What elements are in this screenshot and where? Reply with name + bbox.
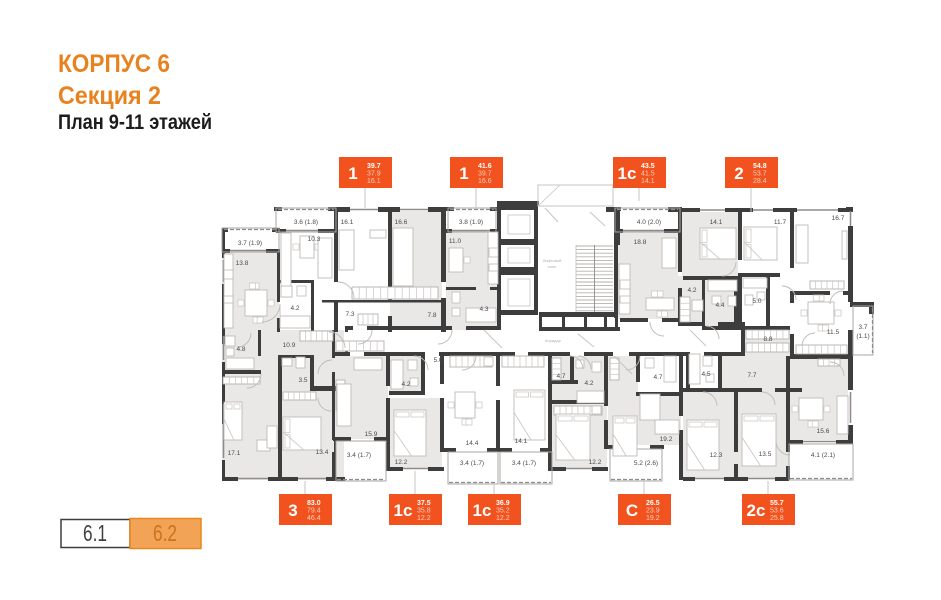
svg-text:3.6 (1.8): 3.6 (1.8) <box>294 219 318 226</box>
svg-text:16.6: 16.6 <box>395 219 408 226</box>
svg-text:26.5: 26.5 <box>646 500 660 507</box>
svg-text:4.7: 4.7 <box>653 374 662 381</box>
svg-text:79.4: 79.4 <box>307 508 321 515</box>
svg-text:15.9: 15.9 <box>365 431 378 438</box>
svg-text:12.2: 12.2 <box>417 515 431 522</box>
svg-text:7.7: 7.7 <box>747 372 756 379</box>
svg-text:2с: 2с <box>747 501 766 520</box>
svg-text:10.3: 10.3 <box>308 236 321 243</box>
svg-text:1с: 1с <box>618 164 637 183</box>
svg-text:25.8: 25.8 <box>770 515 784 522</box>
svg-text:3.7: 3.7 <box>858 324 867 331</box>
svg-text:12.2: 12.2 <box>496 515 510 522</box>
svg-text:С: С <box>626 501 638 520</box>
svg-text:14.1: 14.1 <box>515 438 528 445</box>
svg-text:11.5: 11.5 <box>827 329 840 336</box>
svg-text:6.2: 6.2 <box>153 520 177 546</box>
svg-text:8.8: 8.8 <box>763 336 772 343</box>
svg-text:46.4: 46.4 <box>307 515 321 522</box>
svg-text:Секция 2: Секция 2 <box>58 82 161 110</box>
svg-text:4.8: 4.8 <box>236 346 245 353</box>
svg-text:54.8: 54.8 <box>753 163 767 170</box>
svg-text:37.5: 37.5 <box>417 500 431 507</box>
svg-text:5.0: 5.0 <box>752 298 761 305</box>
svg-text:4.2: 4.2 <box>290 305 299 312</box>
svg-text:19.2: 19.2 <box>646 515 660 522</box>
svg-text:1: 1 <box>459 164 468 183</box>
svg-text:Лифтовой: Лифтовой <box>543 258 562 263</box>
svg-text:3: 3 <box>288 501 297 520</box>
svg-text:18.8: 18.8 <box>634 239 647 246</box>
svg-text:14.4: 14.4 <box>466 440 479 447</box>
svg-text:4.4: 4.4 <box>715 302 724 309</box>
svg-text:12.2: 12.2 <box>589 459 602 466</box>
svg-text:13.8: 13.8 <box>236 260 249 267</box>
svg-text:3.8 (1.9): 3.8 (1.9) <box>459 219 483 226</box>
svg-text:41.6: 41.6 <box>478 163 492 170</box>
svg-text:14.1: 14.1 <box>641 178 655 185</box>
svg-text:6.1: 6.1 <box>83 520 107 546</box>
svg-text:41.5: 41.5 <box>641 171 655 178</box>
svg-text:13.4: 13.4 <box>316 449 329 456</box>
svg-text:5.0: 5.0 <box>433 357 442 364</box>
svg-text:7.8: 7.8 <box>427 312 436 319</box>
svg-text:35.8: 35.8 <box>417 508 431 515</box>
svg-text:холл: холл <box>548 264 557 269</box>
svg-text:19.2: 19.2 <box>660 436 673 443</box>
svg-text:39.7: 39.7 <box>367 163 381 170</box>
svg-text:5.2 (2.6): 5.2 (2.6) <box>634 460 658 467</box>
svg-text:4.5: 4.5 <box>701 371 710 378</box>
svg-text:16.1: 16.1 <box>367 178 381 185</box>
svg-text:КОРПУС 6: КОРПУС 6 <box>58 50 170 78</box>
svg-text:4.2: 4.2 <box>401 381 410 388</box>
svg-text:4.2: 4.2 <box>687 287 696 294</box>
svg-text:11.7: 11.7 <box>774 219 787 226</box>
svg-text:3.4 (1.7): 3.4 (1.7) <box>460 460 484 467</box>
svg-text:План 9-11 этажей: План 9-11 этажей <box>58 111 212 134</box>
svg-text:1с: 1с <box>473 501 492 520</box>
svg-text:43.5: 43.5 <box>641 163 655 170</box>
svg-text:4.2: 4.2 <box>584 380 593 387</box>
svg-text:14.1: 14.1 <box>710 219 723 226</box>
svg-text:17.1: 17.1 <box>228 450 241 457</box>
svg-text:1с: 1с <box>394 501 413 520</box>
svg-text:(1.1): (1.1) <box>856 333 869 340</box>
svg-text:37.9: 37.9 <box>367 171 381 178</box>
svg-text:39.7: 39.7 <box>478 171 492 178</box>
svg-text:12.2: 12.2 <box>395 459 408 466</box>
svg-text:7.3: 7.3 <box>345 311 354 318</box>
svg-text:3.4 (1.7): 3.4 (1.7) <box>347 452 371 459</box>
svg-text:12.3: 12.3 <box>710 452 723 459</box>
svg-text:16.1: 16.1 <box>341 219 354 226</box>
svg-text:4.1 (2.1): 4.1 (2.1) <box>811 452 835 459</box>
svg-text:3.7 (1.9): 3.7 (1.9) <box>238 240 262 247</box>
svg-text:53.6: 53.6 <box>770 508 784 515</box>
svg-text:13.5: 13.5 <box>759 451 772 458</box>
svg-text:16.7: 16.7 <box>832 215 845 222</box>
svg-text:83.0: 83.0 <box>307 500 321 507</box>
svg-text:53.7: 53.7 <box>753 171 767 178</box>
svg-text:3.4 (1.7): 3.4 (1.7) <box>512 460 536 467</box>
svg-text:4.7: 4.7 <box>556 373 565 380</box>
svg-text:36.9: 36.9 <box>496 500 510 507</box>
svg-text:15.6: 15.6 <box>817 428 830 435</box>
svg-text:28.4: 28.4 <box>753 178 767 185</box>
svg-text:10.9: 10.9 <box>283 342 296 349</box>
svg-text:3.5: 3.5 <box>298 377 307 384</box>
svg-text:4.0 (2.0): 4.0 (2.0) <box>637 219 661 226</box>
svg-text:4.3: 4.3 <box>479 306 488 313</box>
svg-text:11.0: 11.0 <box>449 238 462 245</box>
svg-text:16.6: 16.6 <box>478 178 492 185</box>
svg-text:Коридор: Коридор <box>545 338 562 343</box>
svg-text:55.7: 55.7 <box>770 500 784 507</box>
svg-text:1: 1 <box>348 164 357 183</box>
svg-text:2: 2 <box>734 164 743 183</box>
svg-text:23.9: 23.9 <box>646 508 660 515</box>
svg-text:35.2: 35.2 <box>496 508 510 515</box>
